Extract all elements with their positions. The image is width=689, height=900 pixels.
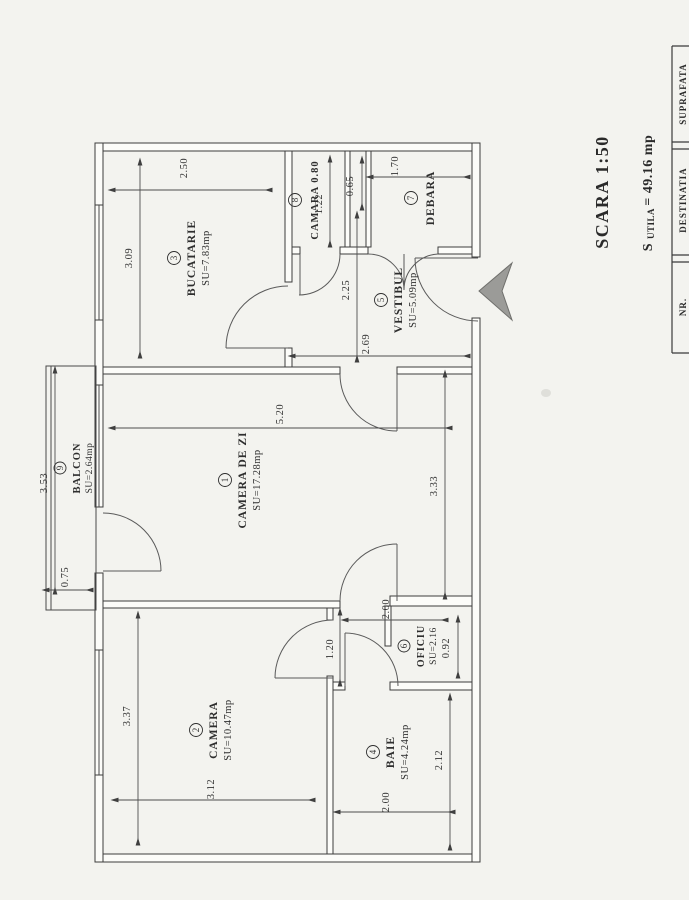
svg-text:DEBARA: DEBARA: [425, 171, 437, 226]
svg-text:6: 6: [399, 643, 409, 648]
dim-camera-w: 3.12: [206, 779, 217, 799]
dim-debara-w: 1.70: [390, 156, 401, 176]
total-area-sub: UTILA: [646, 206, 656, 239]
dim-vestibul-h: 2.25: [341, 280, 352, 300]
svg-text:BALCON: BALCON: [72, 443, 83, 494]
svg-text:3: 3: [169, 255, 179, 260]
dim-balcon-h: 3.53: [39, 473, 50, 493]
table-header-suprafata: SUPRAFATA: [678, 63, 688, 125]
dim-camera-h: 3.37: [122, 706, 133, 726]
svg-text:CAMERA: CAMERA: [208, 701, 220, 759]
dim-bucatarie-h: 3.09: [124, 248, 135, 268]
svg-text:SU=2.16: SU=2.16: [429, 627, 439, 665]
dim-camera-zi-w: 5.20: [275, 404, 286, 424]
svg-text:5: 5: [376, 297, 386, 302]
total-area-value: = 49.16 mp: [641, 135, 656, 206]
total-area-prefix: S: [641, 239, 656, 251]
svg-text:BUCATARIE: BUCATARIE: [186, 220, 198, 296]
svg-text:SU=5.09mp: SU=5.09mp: [408, 272, 419, 328]
svg-text:CAMARA 0.80: CAMARA 0.80: [310, 160, 321, 239]
dim-niche-w: 0.65: [345, 176, 356, 196]
dim-baie-h: 2.12: [434, 750, 445, 770]
window-camera2: [95, 650, 103, 775]
window-kitchen: [95, 205, 103, 320]
svg-text:SU=4.24mp: SU=4.24mp: [400, 724, 411, 780]
svg-text:4: 4: [368, 749, 378, 754]
scan-smudge: [541, 389, 551, 397]
svg-text:2: 2: [191, 728, 201, 733]
table-header-destinatia: DESTINATIA: [678, 167, 688, 232]
scale-label: SCARA 1:50: [592, 135, 612, 249]
svg-text:1: 1: [220, 478, 230, 483]
svg-text:7: 7: [406, 195, 416, 200]
svg-text:CAMERA DE ZI: CAMERA DE ZI: [237, 432, 249, 529]
svg-text:8: 8: [290, 197, 300, 202]
scanned-floor-plan-page: 2.50 3.09 1.22 0.65 1.70 2.25 2.69 5.20 …: [0, 0, 689, 900]
svg-text:OFICIU: OFICIU: [416, 625, 427, 667]
svg-text:SU=2.64mp: SU=2.64mp: [85, 443, 95, 494]
svg-text:BAIE: BAIE: [385, 736, 397, 768]
dim-balcon-w: 0.75: [60, 567, 71, 587]
svg-text:9: 9: [55, 465, 65, 470]
svg-text:VESTIBUL: VESTIBUL: [393, 267, 405, 333]
table-header-nr: NR.: [678, 298, 688, 316]
svg-text:SU=10.47mp: SU=10.47mp: [223, 699, 234, 760]
dim-bucatarie-w: 2.50: [179, 158, 190, 178]
dim-oficiu-w: 2.00: [381, 599, 392, 619]
dim-camera-zi-h: 3.33: [429, 476, 440, 496]
floor-plan-svg: 2.50 3.09 1.22 0.65 1.70 2.25 2.69 5.20 …: [0, 0, 689, 900]
svg-text:SU=7.83mp: SU=7.83mp: [201, 230, 212, 286]
dim-baie-w: 2.00: [381, 792, 392, 812]
dim-oficiu-h: 0.92: [441, 638, 452, 658]
dim-vestibul-w: 2.69: [361, 334, 372, 354]
svg-text:SU=17.28mp: SU=17.28mp: [252, 449, 263, 510]
dim-hall-h: 1.20: [325, 639, 336, 659]
